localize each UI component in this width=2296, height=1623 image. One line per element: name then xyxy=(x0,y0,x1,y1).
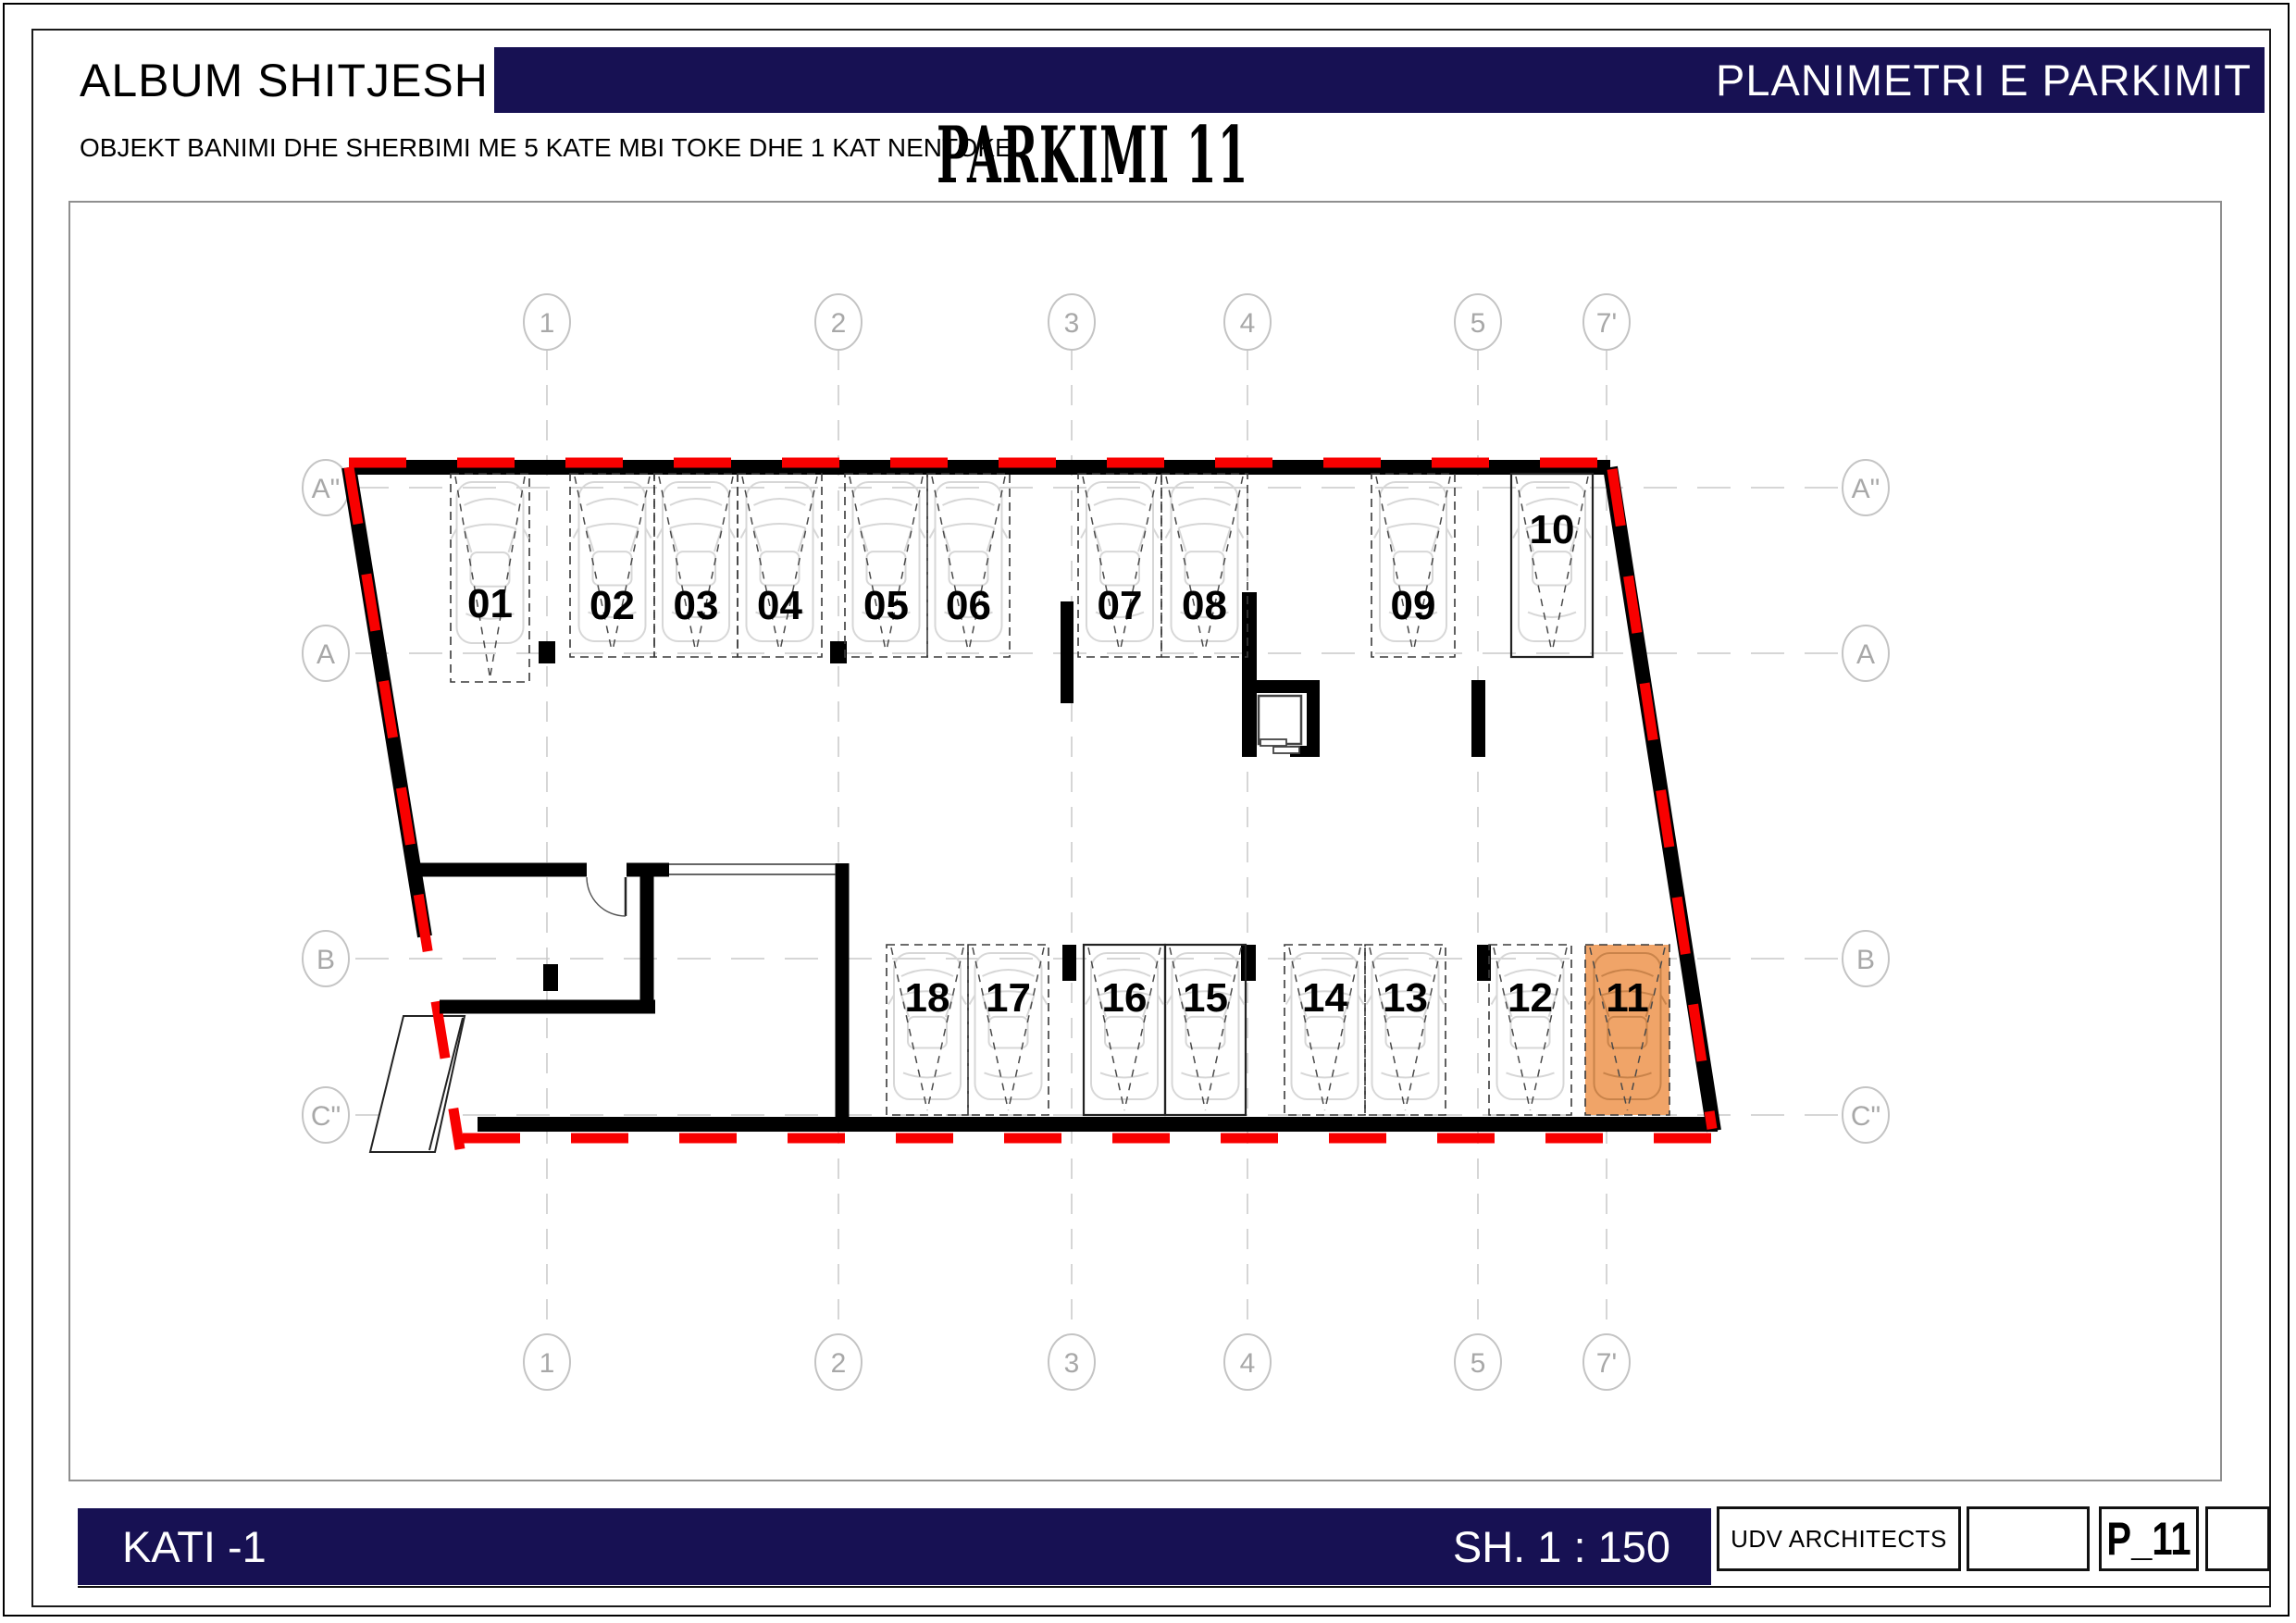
spot-number: 11 xyxy=(1606,975,1649,1021)
spot-number: 06 xyxy=(946,583,991,628)
spot-number: 03 xyxy=(674,583,719,628)
firm-name: UDV ARCHITECTS xyxy=(1731,1525,1947,1554)
elevator-wall xyxy=(1255,680,1320,693)
sheet-code: P_11 xyxy=(2106,1512,2191,1566)
spot-access-line xyxy=(490,477,526,677)
grid-bubble-label: 4 xyxy=(1240,1348,1256,1379)
spot-boundary[interactable] xyxy=(1511,474,1593,657)
spot-boundary[interactable] xyxy=(1161,474,1247,657)
grid-bubble-label: 3 xyxy=(1064,308,1080,339)
spot-number: 05 xyxy=(863,583,909,628)
parking-spot-09[interactable]: 09 xyxy=(1371,474,1455,657)
grid-bubble-label: A xyxy=(316,639,335,670)
grid-bubble-label: 1 xyxy=(540,308,555,339)
spot-access-line xyxy=(455,477,490,677)
spot-access-line xyxy=(1516,477,1552,652)
grid-bubble-label: 2 xyxy=(831,1348,847,1379)
parking-spot-01[interactable]: 01 xyxy=(451,474,529,682)
drawing-sheet: ALBUM SHITJESH PLANIMETRI E PARKIMIT OBJ… xyxy=(0,0,2296,1623)
footer-rule xyxy=(78,1586,2270,1588)
spot-number: 17 xyxy=(986,975,1031,1021)
elevator xyxy=(1242,592,1320,757)
spot-number: 18 xyxy=(905,975,950,1021)
spot-boundary[interactable] xyxy=(654,474,738,657)
titleblock-narrow-box xyxy=(2205,1506,2270,1571)
spot-access-line xyxy=(1494,948,1531,1110)
parking-spot-17[interactable]: 17 xyxy=(968,945,1049,1115)
elevator-cab xyxy=(1259,696,1301,744)
grid-bubble-label: C" xyxy=(1851,1101,1880,1132)
pillar xyxy=(543,964,558,991)
scale-label: SH. 1 : 150 xyxy=(1453,1521,1670,1572)
pillar xyxy=(539,641,555,663)
ramp-outline xyxy=(370,1016,465,1152)
parking-spot-18[interactable]: 18 xyxy=(887,945,968,1115)
grid-bubble-label: 7' xyxy=(1596,1348,1617,1379)
grid-bubble-label: A" xyxy=(1852,474,1880,504)
spot-number: 10 xyxy=(1530,507,1575,552)
parking-spot-16[interactable]: 16 xyxy=(1084,945,1165,1115)
grid-bubble-label: 7' xyxy=(1596,308,1617,339)
spot-boundary[interactable] xyxy=(1371,474,1455,657)
pillar xyxy=(1062,945,1076,981)
parking-spot-05[interactable]: 05 xyxy=(845,474,927,657)
grid-bubble-label: A" xyxy=(312,474,341,504)
spot-number: 02 xyxy=(590,583,635,628)
parking-spot-07[interactable]: 07 xyxy=(1078,474,1161,657)
grid-bubble-label: 5 xyxy=(1471,1348,1486,1379)
spot-number: 04 xyxy=(757,583,802,628)
spot-number: 12 xyxy=(1508,975,1553,1021)
parking-spot-14[interactable]: 14 xyxy=(1285,945,1365,1115)
parking-spot-15[interactable]: 15 xyxy=(1165,945,1246,1115)
spot-number: 08 xyxy=(1182,583,1227,628)
parking-spot-06[interactable]: 06 xyxy=(927,474,1010,657)
parking-spot-08[interactable]: 08 xyxy=(1161,474,1247,657)
firm-box: UDV ARCHITECTS xyxy=(1717,1506,1961,1571)
sheet-code-box: P_11 xyxy=(2099,1506,2199,1571)
spot-number: 01 xyxy=(467,581,513,626)
footer-bar: KATI -1 SH. 1 : 150 xyxy=(78,1508,1711,1585)
elevator-wall xyxy=(1242,592,1257,757)
parking-spot-10[interactable]: 10 xyxy=(1511,474,1593,657)
spot-number: 13 xyxy=(1383,975,1428,1021)
spot-access-line xyxy=(1552,477,1588,652)
grid-bubble-label: 3 xyxy=(1064,1348,1080,1379)
spot-boundary[interactable] xyxy=(570,474,654,657)
grid-bubble-label: A xyxy=(1856,639,1875,670)
spot-number: 15 xyxy=(1183,975,1228,1021)
grid-bubble-label: 5 xyxy=(1471,308,1486,339)
parking-spot-04[interactable]: 04 xyxy=(738,474,822,657)
pillar xyxy=(1471,680,1485,757)
parking-spot-02[interactable]: 02 xyxy=(570,474,654,657)
elevator-door xyxy=(1260,739,1286,746)
spot-boundary[interactable] xyxy=(738,474,822,657)
grid-bubble-label: B xyxy=(1856,945,1875,975)
spot-access-line xyxy=(1531,948,1568,1110)
spot-boundary[interactable] xyxy=(1078,474,1161,657)
parking-spot-13[interactable]: 13 xyxy=(1365,945,1446,1115)
spot-number: 09 xyxy=(1391,583,1436,628)
parking-spot-11[interactable]: 11 xyxy=(1585,945,1669,1115)
grid-bubble-label: 4 xyxy=(1240,308,1256,339)
parking-spot-03[interactable]: 03 xyxy=(654,474,738,657)
spot-number: 14 xyxy=(1302,975,1347,1021)
grid-bubble-label: C" xyxy=(311,1101,341,1132)
floor-plan: 11223344557'7'A"A"AABBC"C"01020304050607… xyxy=(0,0,2296,1623)
spot-number: 16 xyxy=(1102,975,1148,1021)
spot-number: 07 xyxy=(1098,583,1143,628)
pillar xyxy=(1241,945,1256,981)
floor-label: KATI -1 xyxy=(122,1521,267,1572)
grid-bubble-label: 2 xyxy=(831,308,847,339)
grid-bubble-label: B xyxy=(316,945,335,975)
spot-boundary[interactable] xyxy=(451,474,529,682)
spot-boundary[interactable] xyxy=(845,474,927,657)
elevator-door xyxy=(1273,747,1299,753)
parking-spot-12[interactable]: 12 xyxy=(1489,945,1571,1115)
spot-boundary[interactable] xyxy=(927,474,1010,657)
drawing-frame xyxy=(69,202,2221,1481)
pillar xyxy=(1061,601,1074,703)
grid-bubble-label: 1 xyxy=(540,1348,555,1379)
door-swing-arc xyxy=(587,877,626,916)
titleblock-empty-box xyxy=(1967,1506,2090,1571)
car-icon xyxy=(1513,482,1591,641)
